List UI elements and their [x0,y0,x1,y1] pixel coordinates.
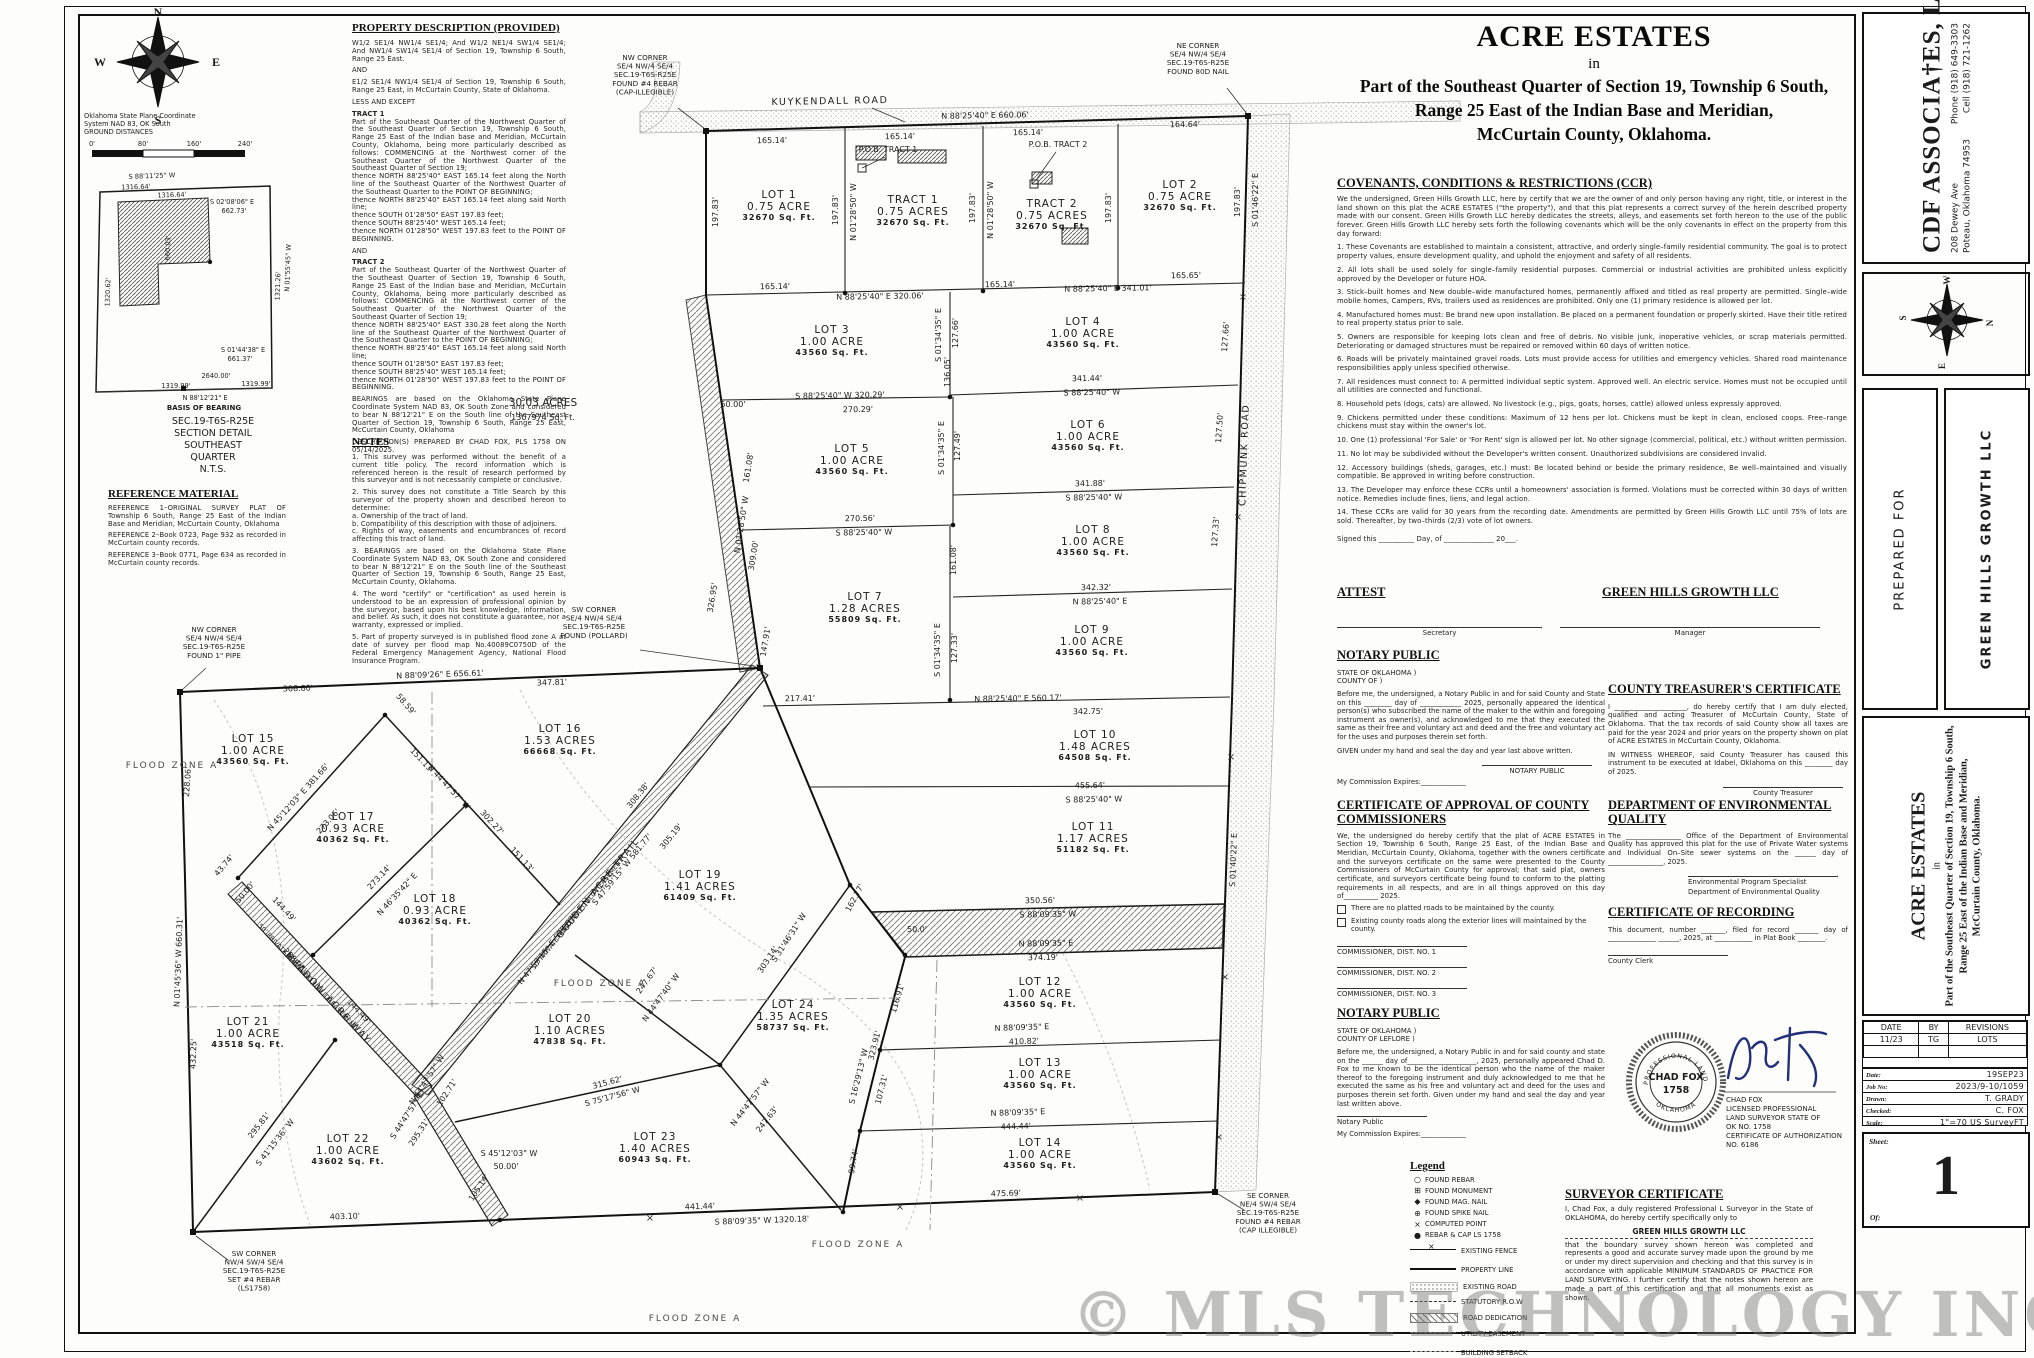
recording-body: This document, number _______, filed for… [1608,926,1848,943]
lot-label: LOT 121.00 ACRE43560 Sq. Ft. [1003,976,1076,1009]
deq-certificate: DEPARTMENT OF ENVIRONMENTAL QUALITY The … [1608,798,1848,897]
legend-symbol-icon: ◆ [1410,1197,1425,1206]
ccr-item: 7. All residences must connect to: A per… [1337,378,1847,395]
plat-label: N 88'09'35" E [1019,939,1074,949]
plat-label: 147.91' [759,626,773,657]
prepared-for-box: PREPARED FOR [1862,388,1938,710]
plat-label: 2640.00' [201,372,230,380]
plat-label: 127.50' [1214,412,1225,443]
plat-label: S 88'11'25" W [128,171,175,181]
plat-label: 165.65' [1171,271,1201,281]
notary2-heading: NOTARY PUBLIC [1337,1006,1605,1022]
note-item: 3. BEARINGS are based on the Oklahoma St… [352,548,566,587]
ccr-item: 8. Household pets (dogs, cats) are allow… [1337,400,1847,409]
corner-label: SE CORNERNE/4 SW/4 SE/4SEC.19-T6S-R25EFO… [1235,1191,1301,1234]
owner-block: GREEN HILLS GROWTH LLC Manager [1560,585,1848,637]
reference-item: REFERENCE 1–ORIGINAL SURVEY PLAT OF Town… [108,505,286,528]
legend-symbol-icon: × [1410,1220,1425,1229]
surveyor-cert-heading: SURVEYOR CERTIFICATE [1565,1187,1723,1201]
lot-label: LOT 51.00 ACRE43560 Sq. Ft. [815,443,888,476]
legend-line-sample-icon [1410,1351,1456,1358]
rev-row-by: TG [1919,1034,1948,1046]
legend-line-sample-icon [1410,1268,1456,1279]
lot-label: LOT 91.00 ACRE43560 Sq. Ft. [1055,624,1128,657]
note-item: 1. This survey was performed without the… [352,454,566,485]
info-value: 19SEP23 [1987,1070,2024,1079]
plat-label: 270.56' [845,514,875,524]
pd-paragraph: LESS AND EXCEPT [352,99,566,107]
note-item: 4. The word "certify" or "certification"… [352,591,566,630]
plat-label: 0' [89,140,95,148]
plat-label: 661.37' [228,355,253,363]
info-label: Date: [1866,1072,1881,1079]
corner-leader-line [182,668,206,690]
legend-heading: Legend [1410,1160,1445,1172]
notary2-caption: Notary Public [1337,1118,1605,1127]
plat-label: S 88'25'40" W [1066,795,1123,805]
legend-item: ○FOUND REBAR [1410,1175,1570,1184]
treasurer-witness: IN WITNESS WHEREOF, said County Treasure… [1608,751,1848,777]
legend-item: PROPERTY LINE [1410,1261,1570,1279]
lot-label: LOT 101.48 ACRES64508 Sq. Ft. [1058,729,1131,762]
legend-symbol-icon: ⊕ [1410,1209,1425,1218]
plat-subtitle: McCurtain County, Oklahoma. [1340,124,1848,145]
plat-label: P.O.B. TRACT 2 [1029,140,1088,149]
plat-label: S 01'34'35" E [934,308,943,362]
legend-item-label: EXISTING ROAD [1463,1283,1517,1291]
plat-label: 43.74' [213,853,236,878]
plat-label: SOUTHEAST [184,440,242,451]
notary-public-2: NOTARY PUBLIC STATE OF OKLAHOMA ) COUNTY… [1337,1006,1605,1139]
lot-label: LOT 10.75 ACRE32670 Sq. Ft. [742,189,815,222]
ccr-item: 9. Chickens permitted under these condit… [1337,414,1847,431]
cdf-title-box: CDF ASSOCIA†ES, LLC. 208 Dewey Ave Potea… [1862,12,2030,264]
plat-label: S 88'09'35" W [1020,910,1077,920]
plat-label: 165.14' [760,282,790,292]
ccr-item: 14. These CCRs are valid for 30 years fr… [1337,508,1847,525]
corner-label: NW CORNERSE/4 NW/4 SE/4SEC.19-T6S-R25EFO… [612,53,678,96]
plat-label: FLOOD ZONE A [554,979,647,989]
lot-label: LOT 131.00 ACRE43560 Sq. Ft. [1003,1057,1076,1090]
ccr-item: 12. Accessory buildings (sheds, garages,… [1337,464,1847,481]
plat-label: S 88'25'40" W [836,528,893,538]
plat-label: 350.56' [1025,896,1055,906]
legend-item: ROAD DEDICATION [1410,1313,1570,1323]
legend-item-label: FOUND MAG. NAIL [1425,1198,1487,1206]
treasurer-certificate: COUNTY TREASURER'S CERTIFICATE I _______… [1608,682,1848,797]
lot-label: LOT 161.53 ACRES66668 Sq. Ft. [523,723,596,756]
surveyor-cert-body2: that the boundary survey shown hereon wa… [1565,1241,1813,1304]
plat-label: FLOOD ZONE A [812,1240,905,1250]
lot-label: LOT 201.10 ACRES47838 Sq. Ft. [533,1013,606,1046]
stamp-info-line: OK NO. 1758 [1726,1123,1856,1132]
plat-label: 162.77' [844,882,866,913]
info-value: C. FOX [1996,1106,2024,1115]
legend-item: ●REBAR & CAP LS 1758 [1410,1231,1570,1240]
plat-label: FLOOD ZONE A [649,1314,742,1324]
legend-item: EXISTING FENCE [1410,1242,1570,1259]
plat-subtitle: Part of the Southeast Quarter of Section… [1340,76,1848,97]
note-item: 5. Part of property surveyed is in publi… [352,634,566,665]
plat-label: S 88'09'35" W 1320.18' [715,1214,810,1226]
plat-label: 342.32' [1081,583,1111,593]
ccr-item: 1. These Covenants are established to ma… [1337,243,1847,260]
plat-label: 342.75' [1073,707,1103,717]
kuykendall-road-band [640,101,1460,133]
ccr-item: 10. One (1) professional 'For Sale' or '… [1337,436,1847,445]
plat-label: 323.91' [867,1030,883,1061]
plat-label: 341.44' [1072,374,1102,384]
legend-item: STATUTORY R.O.W [1410,1294,1570,1311]
reference-material: REFERENCE MATERIAL REFERENCE 1–ORIGINAL … [108,482,286,572]
plat-label: N 88'25'40" E [1073,597,1128,607]
plat-label: N 01'45'36" W 660.31' [172,917,184,1008]
lot-label: TRACT 10.75 ACRES32670 Sq. Ft. [876,194,949,227]
plat-label: N [154,5,163,19]
lot-label: LOT 180.93 ACRE40362 Sq. Ft. [398,893,471,926]
legend-item: ⊕FOUND SPIKE NAIL [1410,1209,1570,1218]
stamp-info-line: NO. 6186 [1726,1141,1856,1150]
ccr-item: 4. Manufactured homes must: Be brand new… [1337,311,1847,328]
legend-item: ×COMPUTED POINT [1410,1220,1570,1229]
notary-public-1: NOTARY PUBLIC STATE OF OKLAHOMA ) COUNTY… [1337,648,1605,787]
attest-block: ATTEST Secretary [1337,585,1592,637]
plat-label: × [646,1213,654,1224]
deq-body: The ________________ Office of the Depar… [1608,832,1848,867]
plat-label: 662.73' [222,207,247,215]
plat-label: W [94,55,106,69]
plat-label: 315.62' [592,1074,624,1091]
treasurer-heading: COUNTY TREASURER'S CERTIFICATE [1608,682,1848,698]
notary1-state: STATE OF OKLAHOMA ) [1337,669,1605,678]
legend-item: UTILITY EASEMENT [1410,1325,1570,1342]
notary1-commission: My Commission Expires:_____________ [1337,778,1605,787]
plat-label: 302.27' [478,808,505,836]
plat-label: 165.14' [885,132,915,142]
legend-item-label: ROAD DEDICATION [1463,1314,1527,1322]
plat-label: 99.74' [847,1148,860,1174]
ccr-item: 2. All lots shall be used solely for sin… [1337,266,1847,283]
ccr-section: COVENANTS, CONDITIONS & RESTRICTIONS (CC… [1337,172,1847,548]
plat-label: 80' [138,140,148,148]
plat-label: N 88'09'35" E [990,1107,1045,1118]
info-value: T. GRADY [1985,1094,2024,1103]
plat-label: 127.66' [1220,321,1231,352]
plat-label: 161.08' [949,545,958,575]
legend-item-label: BUILDING SETBACK [1461,1349,1527,1357]
coordinate-system-note: Oklahoma State Plane Coordinate System N… [84,112,244,137]
plat-label: 58.59' [394,692,417,717]
plat-label: × [1227,752,1235,763]
cdf-address2: Poteau, Oklahoma 74953 [1962,139,1974,253]
roads-checkbox [1337,905,1346,914]
plat-label: N 88'09'35" E [994,1022,1049,1033]
plat-label: SEC.19-T6S-R25E [172,416,254,427]
county-roads-checkbox [1337,918,1346,927]
svg-text:OKLAHOMA: OKLAHOMA [1654,1101,1697,1114]
plat-document-page: LICENSED PROFESSIONAL LAND SURVEYOR OKLA… [0,0,2034,1358]
plat-label: 341.88' [1075,479,1105,489]
chipmunk-road-band [1215,114,1290,1192]
meadow-acre-way-band [228,882,432,1098]
plat-label: 1319.99' [161,382,190,390]
reference-material-heading: REFERENCE MATERIAL [108,488,238,500]
plat-label: 326.95' [706,582,720,613]
plat-label: N 88'09'26" E 656.61' [396,668,484,680]
legend-item-label: COMPUTED POINT [1425,1220,1487,1228]
legend-symbol-icon: ● [1410,1231,1425,1240]
surveyor-certificate: SURVEYOR CERTIFICATE I, Chad Fox, a duly… [1565,1186,1813,1303]
plat-label: QUARTER [190,452,236,463]
property-description: PROPERTY DESCRIPTION (PROVIDED) W1/2 SE1… [352,16,566,459]
info-label: Checked: [1866,1108,1891,1115]
plat-label: 50' PRIVATE ROAD AND UTILITY EASEMENT [256,922,359,1032]
cdf-address1: 208 Dewey Ave [1950,139,1962,253]
plat-label: 127.33' [1210,516,1221,547]
plat-label: N 88'25'40" E 320.06' [836,291,924,302]
reference-item: REFERENCE 2–Book 0723, Page 932 as recor… [108,532,286,548]
plat-label: 308.80' [283,683,313,693]
plat-label: 136.05' [943,357,952,387]
attest-caption: Secretary [1337,629,1542,638]
plat-label: 247.63' [754,1105,780,1134]
strip-subtitle: Range 25 East of the Indian Base and Mer… [1957,725,1971,1007]
notary1-county: COUNTY OF ) [1337,677,1605,686]
plat-label: 164.64' [1170,120,1200,130]
plat-label: N 01'55'45" W [283,244,293,292]
pd-tract1: Part of the Southeast Quarter of the Nor… [352,119,566,244]
lot-label: LOT 221.00 ACRE43602 Sq. Ft. [311,1133,384,1166]
corner-label: NW CORNERSE/4 NW/4 SE/4SEC.19-T6S-R25EFO… [183,625,246,660]
notary1-body: Before me, the undersigned, a Notary Pub… [1337,690,1605,742]
plat-label: 127.49' [953,431,962,461]
plat-label: 127.66' [951,318,960,348]
legend: Legend ○FOUND REBAR⊞FOUND MONUMENT◆FOUND… [1410,1160,1570,1358]
cdf-phone: Phone (918) 649-3303 [1950,23,1962,124]
plat-label: 309.00' [747,540,761,571]
plat-label: 295.31' [407,1118,431,1148]
plat-label: × [1076,1193,1084,1204]
plat-label: 403.10' [330,1211,360,1221]
compass-box [1862,272,2030,376]
lot-label: LOT 111.17 ACRES51182 Sq. Ft. [1056,821,1129,854]
rev-header-revisions: REVISIONS [1948,1022,2026,1034]
plat-label: FLOOD ZONE A [126,761,219,771]
plat-label: 455.64' [1075,781,1105,791]
ccr-intro: We the undersigned, Green Hills Growth L… [1337,195,1847,238]
notary2-county: COUNTY OF LEFLORE ) [1337,1035,1605,1044]
stamp-info-line: CERTIFICATE OF AUTHORIZATION [1726,1132,1856,1141]
plat-label: 444.44' [1001,1121,1031,1131]
lot-label: LOT 61.00 ACRE43560 Sq. Ft. [1051,419,1124,452]
lot-label: LOT 241.35 ACRES58737 Sq. Ft. [756,999,829,1032]
legend-item-label: STATUTORY R.O.W [1461,1298,1523,1306]
legend-symbol-icon: ⊞ [1410,1186,1425,1195]
title-block: ACRE ESTATES in Part of the Southeast Qu… [1340,20,1848,145]
legend-item-label: EXISTING FENCE [1461,1247,1517,1255]
attest-heading: ATTEST [1337,585,1592,601]
lot-label: LOT 31.00 ACRE43560 Sq. Ft. [795,324,868,357]
strip-subtitle: Part of the Southeast Quarter of Section… [1944,725,1958,1007]
notary2-commission: My Commission Expires:_____________ [1337,1130,1605,1139]
strip-title: ACRE ESTATES [1908,725,1931,1007]
pd-paragraph: AND [352,248,566,256]
deq-caption2: Department of Environmental Quality [1688,888,1848,897]
treasurer-caption: County Treasurer [1723,789,1843,798]
notary1-caption: NOTARY PUBLIC [1482,767,1592,776]
notes: NOTES 1. This survey was performed witho… [352,430,566,669]
legend-item-label: REBAR & CAP LS 1758 [1425,1231,1501,1239]
plat-label: N 88'25'40" E 660.06' [941,110,1029,121]
plat-label: 273.14' [366,863,393,891]
plat-label: 50.00' [720,400,745,409]
recording-heading: CERTIFICATE OF RECORDING [1608,905,1848,921]
recording-caption: County Clerk [1608,957,1848,966]
plat-label: 347.81' [537,677,567,687]
corner-label: SW CORNERSE/4 NW/4 SE/4SEC.19-T6S-R25EFO… [560,605,628,640]
stamp-info-line: CHAD FOX [1726,1096,1856,1105]
notary2-state: STATE OF OKLAHOMA ) [1337,1027,1605,1036]
north-compass-icon [117,17,199,107]
plat-label: 197.83' [968,193,977,223]
legend-item: BUILDING SETBACK [1410,1344,1570,1358]
plat-label: × [896,1202,904,1213]
stamp-info-line: LICENSED PROFESSIONAL [1726,1105,1856,1114]
plat-label: 50.00' [493,1162,518,1171]
plat-label: S 01'34'35" E [933,623,942,677]
plat-label: 1320.62' [103,277,112,307]
notary1-given: GIVEN under my hand and seal the day and… [1337,747,1605,756]
plat-label: 161.08' [742,452,756,483]
plat-label: 217.41' [785,694,815,704]
legend-line-sample-icon [1410,1249,1456,1259]
legend-line-sample-icon [1410,1332,1456,1342]
ccr-item: 5. Owners are responsible for keeping lo… [1337,333,1847,350]
strip-subtitle: McCurtain County, Oklahoma. [1971,725,1985,1007]
commissioners-check1: There are no platted roads to be maintai… [1351,904,1555,914]
property-description-heading: PROPERTY DESCRIPTION (PROVIDED) [352,22,560,34]
plat-label: 374.19' [1028,953,1058,963]
plat-label: × [1234,512,1242,523]
plat-label: 50.0' [907,925,927,934]
ccr-item: 11. No lot may be subdivided without the… [1337,450,1847,459]
client-box: GREEN HILLS GROWTH LLC [1944,388,2030,710]
info-label: Drawn: [1866,1096,1887,1103]
notary2-body: Before me, the undersigned, a Notary Pub… [1337,1048,1605,1108]
strip-title-in: in [1932,725,1943,1007]
sheet-box: Sheet: 1 Of: [1862,1132,2030,1228]
strip-title-box: ACRE ESTATES in Part of the Southeast Qu… [1862,716,2030,1016]
legend-item: EXISTING ROAD [1410,1282,1570,1292]
legend-line-sample-icon [1410,1282,1458,1292]
plat-label: N.T.S. [200,464,227,475]
recording-certificate: CERTIFICATE OF RECORDING This document, … [1608,905,1848,966]
legend-line-sample-icon [1410,1301,1456,1311]
lot-label: TRACT 20.75 ACRES32670 Sq. Ft. [1015,198,1088,231]
sheet-of-label: Of: [1870,1213,1880,1222]
plat-label: 165.14' [985,280,1015,290]
reference-item: REFERENCE 3–Book 0771, Page 634 as recor… [108,552,286,568]
rev-header-by: BY [1919,1022,1948,1034]
commissioners-certificate: CERTIFICATE OF APPROVAL OF COUNTY COMMIS… [1337,798,1605,998]
plat-label: N 88'25'40" E 560.17' [974,693,1062,704]
plat-label: N 88'12'21" E [182,394,227,402]
plat-label: 1319.99' [241,380,270,388]
plat-title: ACRE ESTATES [1340,20,1848,54]
note-item: 2. This survey does not constitute a Tit… [352,489,566,544]
plat-label: S 45'12'03" W [481,1149,538,1158]
pd-tract2: Part of the Southeast Quarter of the Nor… [352,267,566,392]
info-value: 1"=70 US SurveyFT [1940,1118,2024,1127]
plat-label: × [1239,292,1247,303]
legend-line-sample-icon [1410,1313,1458,1323]
plat-label: 228.06' [182,766,193,797]
commissioner-dist-1: COMMISSIONER, DIST. NO. 1 [1337,948,1605,957]
commissioners-heading: CERTIFICATE OF APPROVAL OF COUNTY COMMIS… [1337,798,1605,827]
stamp-ring-bottom-text: OKLAHOMA [1654,1101,1697,1114]
plat-title-in: in [1340,56,1848,73]
plat-label: S 02'08'06" E [210,198,254,206]
surveyor-stamp-info: CHAD FOX LICENSED PROFESSIONAL LAND SURV… [1726,1096,1856,1151]
plat-label: 1316.64' [121,182,151,191]
job-info-table: Date:19SEP23 Job No:2023/9-10/1059 Drawn… [1862,1068,2028,1126]
lot-label: LOT 81.00 ACRE43560 Sq. Ft. [1056,524,1129,557]
notary1-heading: NOTARY PUBLIC [1337,648,1605,664]
stamp-number: 1758 [1663,1085,1690,1096]
plat-label: 240' [238,140,253,148]
treasurer-body: I _____________________, do hereby certi… [1608,703,1848,746]
cdf-company-name: CDF ASSOCIA†ES, LLC. [1918,23,1946,253]
commissioners-check2: Existing county roads along the exterior… [1351,917,1605,934]
plat-label: 441.44' [685,1201,715,1211]
sheet-number: 1 [1932,1144,1960,1208]
ccr-heading: COVENANTS, CONDITIONS & RESTRICTIONS (CC… [1337,176,1652,190]
deq-caption1: Environmental Program Specialist [1688,878,1848,887]
plat-label: 107.31' [874,1074,890,1105]
plat-label: 1316.64' [157,190,187,199]
corner-label: SW CORNERNW/4 SW/4 SE/4SEC.19-T6S-R25ESE… [223,1249,286,1292]
plat-label: 475.69' [991,1188,1021,1198]
plat-label: E [212,55,220,69]
corner-leader-line [196,1236,228,1260]
plat-label: N 44'47'57" W [426,763,472,811]
plat-label: × [1221,972,1229,983]
pd-paragraph: W1/2 SE1/4 NW1/4 SE1/4; And W1/2 NE1/4 S… [352,40,566,63]
plat-label: 127.33' [950,633,959,663]
plat-label: S 88'25'40" W [1066,493,1123,503]
plat-label: 197.83' [1104,193,1113,223]
revisions-table: DATE BY REVISIONS 11/23 TG LOTS [1862,1020,2028,1068]
commissioners-body: We, the undersigned do hereby certify th… [1337,832,1605,901]
plat-label: 295.81' [246,1111,272,1140]
plat-label: 151.13' [508,845,535,873]
surveyor-signature [1724,1028,1836,1092]
legend-item-label: UTILITY EASEMENT [1461,1330,1525,1338]
ccr-item: 6. Roads will be privately maintained gr… [1337,355,1847,372]
lot-label: LOT 71.28 ACRES55809 Sq. Ft. [828,591,901,624]
legend-item: ◆FOUND MAG. NAIL [1410,1197,1570,1206]
prepared-for-label: PREPARED FOR [1893,487,1908,610]
sheet-label: Sheet: [1869,1137,1889,1146]
lot-label: LOT 151.00 ACRE43560 Sq. Ft. [216,733,289,766]
plat-label: 1321.26' [273,271,282,301]
lot-label: LOT 141.00 ACRE43560 Sq. Ft. [1003,1137,1076,1170]
plat-label: 432.25' [188,1039,198,1069]
plat-label: S 01'40'22" E [1228,833,1239,887]
plat-label: 197.83' [831,195,840,225]
pd-paragraph: E1/2 SE1/4 NW1/4 SE1/4 of Section 19, To… [352,79,566,95]
plat-label: S 88'25'40" W [1064,388,1121,398]
